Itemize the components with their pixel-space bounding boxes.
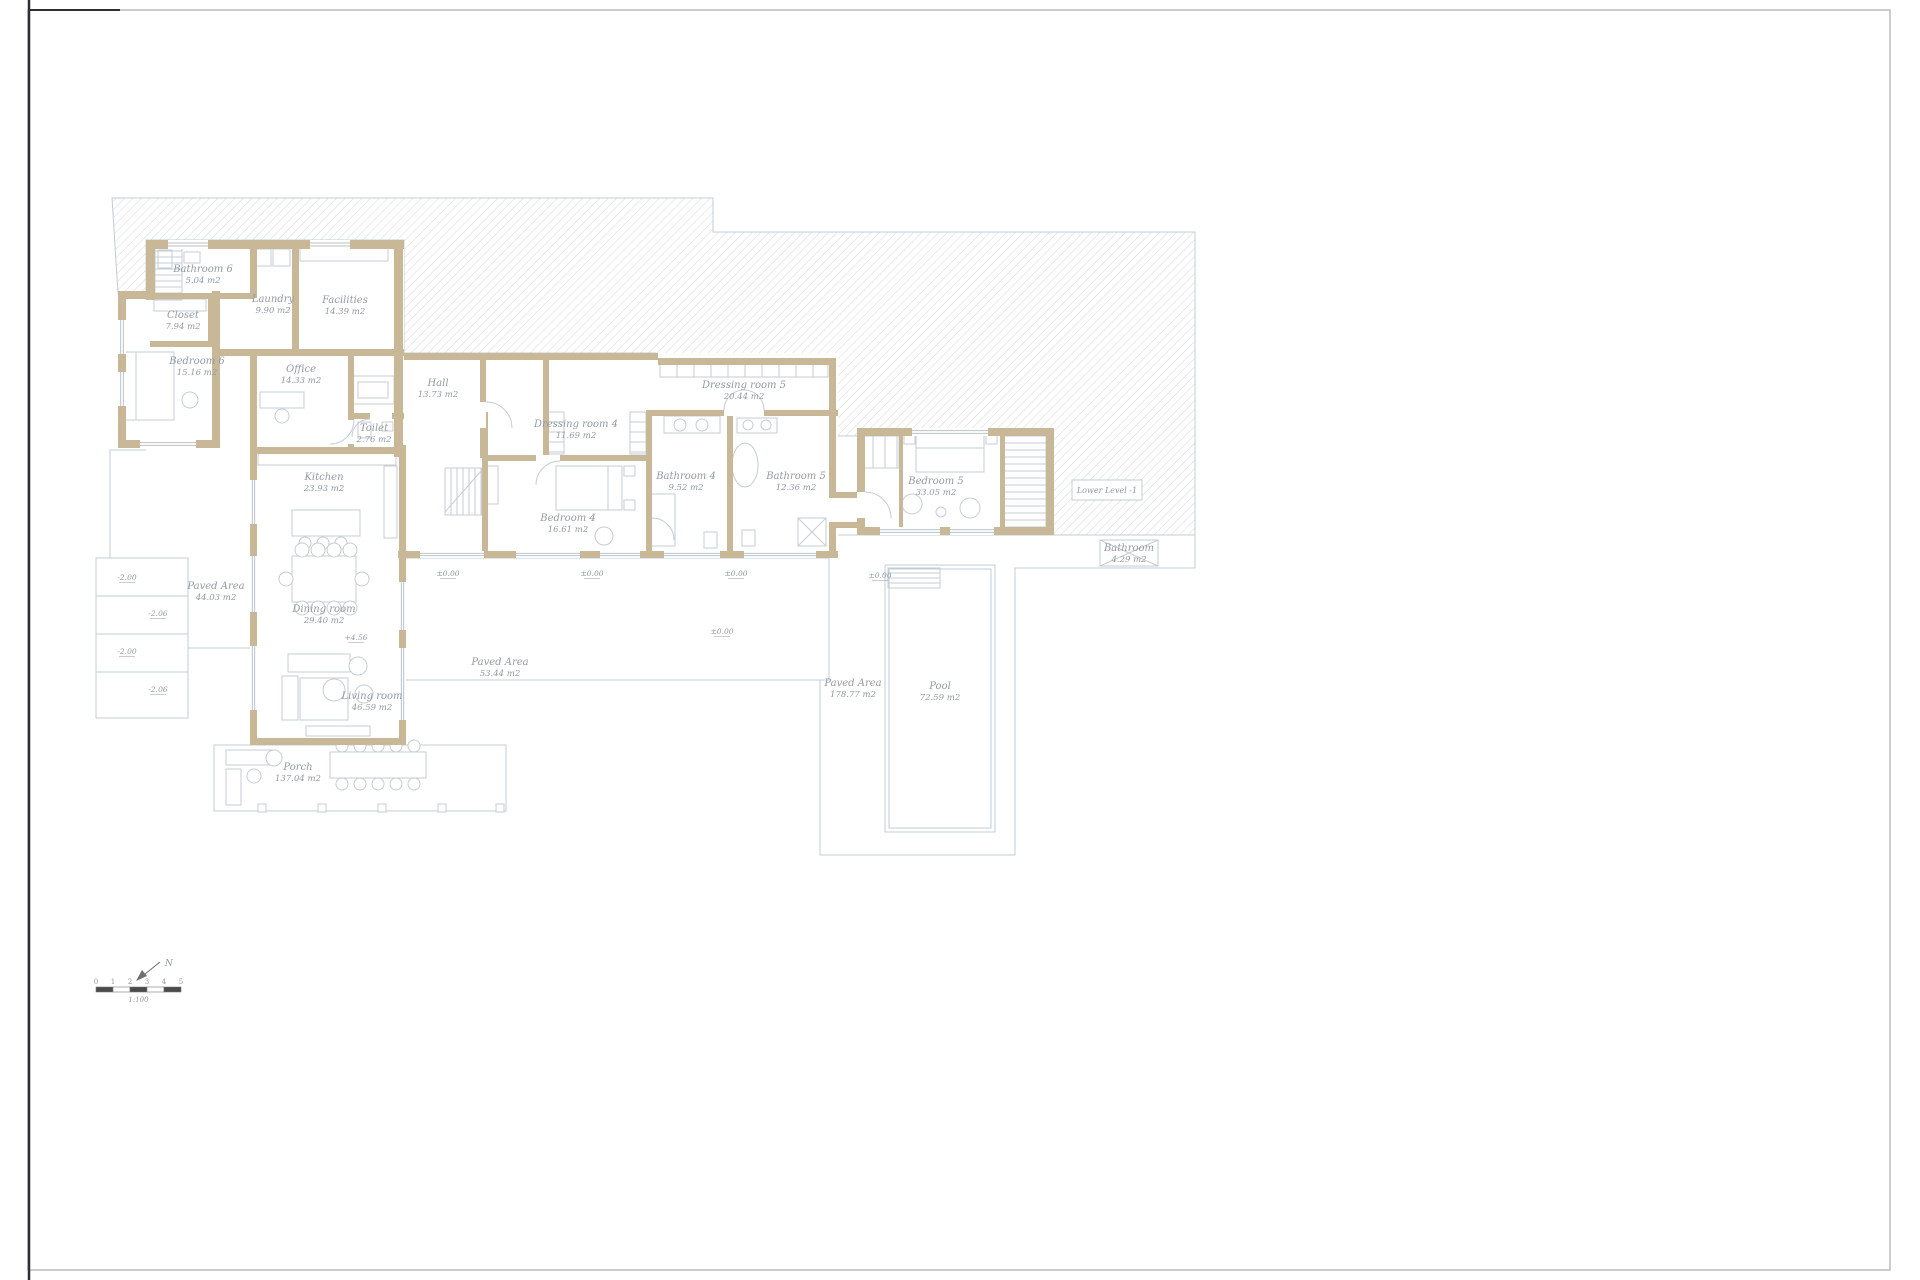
floor-plan-drawing: Bathroom 65.04 m2Closet7.94 m2Bedroom 61…	[0, 0, 1920, 1280]
level-mark: -2.06	[148, 685, 167, 694]
scale-tick: 2	[128, 978, 132, 986]
level-mark: -2.00	[117, 573, 136, 582]
level-mark: ±0.00	[725, 569, 748, 578]
level-mark: ±0.00	[711, 627, 734, 636]
scale-caption: 1:100	[128, 996, 149, 1004]
scale-tick: 3	[145, 978, 149, 986]
level-mark: -2.00	[117, 647, 136, 656]
north-label: N	[164, 959, 174, 969]
level-mark: ±0.00	[869, 571, 892, 580]
level-mark: ±0.00	[437, 569, 460, 578]
level-mark: +4.56	[345, 633, 368, 642]
lower-level-label: Lower Level -1	[1076, 486, 1137, 495]
scale-tick: 1	[111, 978, 115, 986]
scale-tick: 0	[94, 978, 98, 986]
floor-plan-page: Bathroom 65.04 m2Closet7.94 m2Bedroom 61…	[0, 0, 1920, 1280]
north-arrow-icon: N	[136, 959, 174, 981]
scale-tick: 4	[162, 978, 167, 986]
level-mark: ±0.00	[581, 569, 604, 578]
level-mark: -2.06	[148, 609, 167, 618]
lower-level-reference: Lower Level -1	[1072, 480, 1142, 500]
scale-tick: 5	[179, 978, 183, 986]
scale-bar: 0123451:100	[94, 978, 183, 1004]
